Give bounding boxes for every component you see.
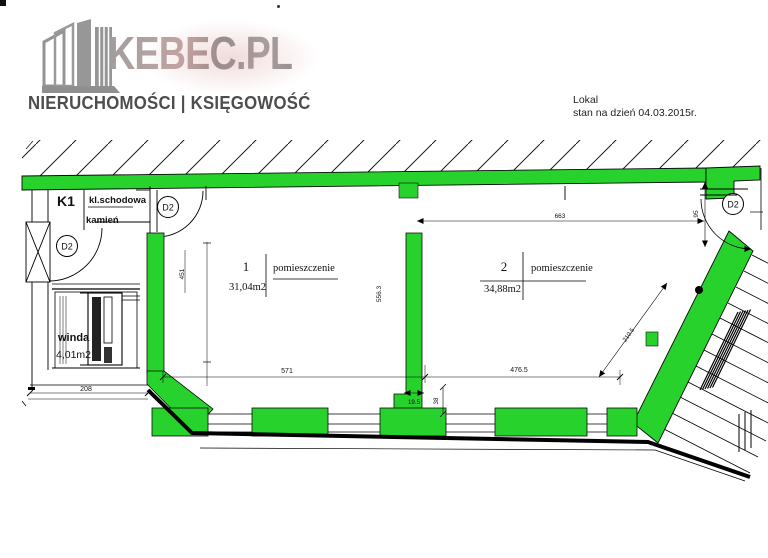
stairwell-name: kl.schodowa [89,195,147,206]
stairwell-code: K1 [57,193,75,209]
room2-number: 2 [501,259,508,274]
dim-v1: 451 [179,268,186,279]
wall-room1-left [147,233,164,373]
dim-s1: 19.5 [408,399,421,406]
stairwell-material: kamień [86,215,119,226]
logo: KEBEC.PLTM NIERUCHOMOŚCI | KSIĘGOWOŚĆ [0,0,330,130]
ground-line-diag [655,450,745,481]
floorplan-document: KEBEC.PLTM NIERUCHOMOŚCI | KSIĘGOWOŚĆ Lo… [0,0,768,558]
room2-label: 2 pomieszczenie 34,88m2 [480,252,593,300]
dim-w1: 571 [281,368,293,375]
room1-label: 1 pomieszczenie 31,04m2 [229,254,338,297]
room1-type: pomieszczenie [273,263,335,274]
dim-w2: 476.5 [510,367,528,374]
scan-artifact-dot [277,5,280,8]
note-date: stan na dzień 04.03.2015r. [573,107,697,120]
door-d2-label: D2 [61,242,73,252]
dim-elevator: 208 [80,386,92,393]
brand-title: KEBEC.PLTM [108,26,312,80]
brand-name: KEBEC.PL [108,27,292,79]
elevator-name: winda [57,332,90,344]
plan-note: Lokal stan na dzień 04.03.2015r. [573,94,697,120]
room2-area: 34,88m2 [484,284,521,295]
room1-area: 31,04m2 [229,282,266,293]
elevator-area: 4,01m2 [56,349,91,361]
dim-diag: 210.5 [621,326,636,343]
room2-type: pomieszczenie [531,263,593,274]
wall-notch [646,332,658,346]
dim-s2: 38 [433,397,440,404]
dim-door: 95 [693,210,700,218]
wall-room-divider [394,233,422,409]
note-title: Lokal [573,94,697,107]
dimensions: 663 95 571 476.5 208 [27,182,751,417]
dim-top: 663 [555,213,566,220]
trademark: TM [292,28,312,47]
door-d2-label: D2 [162,203,174,213]
column-dot [695,286,703,294]
dim-v2: 556.3 [376,285,383,302]
ground-line [200,448,655,450]
scan-artifact [0,0,6,6]
door-d2-label: D2 [727,200,739,210]
wall-top-tab [399,183,418,198]
brand-tagline: NIERUCHOMOŚCI | KSIĘGOWOŚĆ [28,93,311,114]
floorplan-drawing: K1 kl.schodowa kamień D2 D2 D2 [0,130,768,558]
room1-number: 1 [243,259,250,274]
